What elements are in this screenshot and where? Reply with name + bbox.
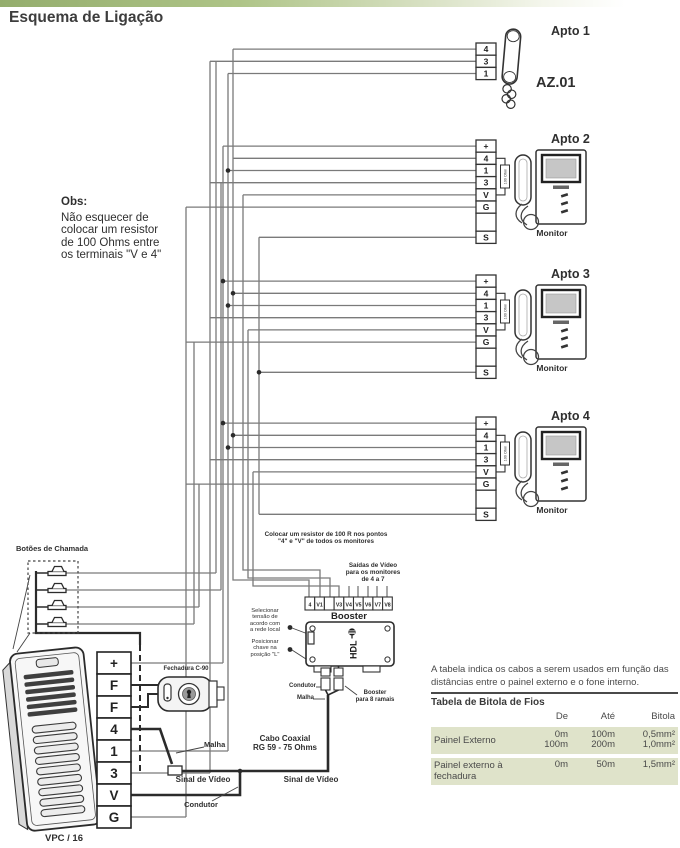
wire-gauge-table: Tabela de Bitola de Fios De Até Bitola P… bbox=[431, 692, 678, 785]
terminal-label: V6 bbox=[365, 603, 371, 609]
terminal-label: 4 bbox=[484, 430, 489, 440]
terminal-label: G bbox=[483, 202, 490, 212]
terminal-label: 1 bbox=[484, 301, 489, 311]
call-button-icon bbox=[48, 567, 66, 627]
resistor-value: 100 Ohm bbox=[504, 169, 508, 185]
lock-icon bbox=[158, 677, 224, 711]
booster-terminal-strip: 4 V1 V3 V4 V5 V6 V7 V8 bbox=[305, 597, 392, 610]
terminal-label: V bbox=[483, 467, 489, 477]
row-label: Painel externo à fechadura bbox=[431, 758, 527, 785]
monitor-icon bbox=[515, 285, 586, 365]
terminal-label: + bbox=[484, 141, 489, 151]
call-buttons-label: Botões de Chamada bbox=[16, 544, 88, 553]
terminal-label: V5 bbox=[355, 603, 361, 609]
terminal-label: V8 bbox=[384, 603, 390, 609]
switch-position-note: Posicionar chave na posição "L" bbox=[242, 639, 288, 658]
resistor-symbols: 100 Ohm 100 Ohm 100 Ohm bbox=[496, 158, 510, 472]
terminal-label: + bbox=[484, 418, 489, 428]
terminal-label: V7 bbox=[375, 603, 381, 609]
terminal-label: 3 bbox=[484, 56, 489, 66]
terminal-label: V3 bbox=[336, 603, 342, 609]
terminal-label: G bbox=[483, 337, 490, 347]
terminal-label: + bbox=[484, 276, 489, 286]
row-label: Painel Externo bbox=[431, 727, 527, 754]
monitor-terminal-strips: + 4 1 3 V G S + 4 1 3 V G S bbox=[476, 140, 496, 520]
apto4-label: Apto 4 bbox=[551, 409, 590, 423]
terminal-label: 3 bbox=[484, 178, 489, 188]
lock-label: Fechadura C-90 bbox=[158, 666, 214, 672]
conductor-label: Condutor bbox=[176, 800, 226, 809]
resistor-value: 100 Ohm bbox=[504, 304, 508, 320]
terminal-label: S bbox=[483, 367, 489, 377]
booster-label: Booster bbox=[305, 611, 393, 622]
table-intro: A tabela indica os cabos a serem usados … bbox=[431, 663, 678, 689]
monitor-caption: Monitor bbox=[512, 505, 592, 515]
terminal-label: S bbox=[483, 232, 489, 242]
table-row: Painel Externo 0m 100m 100m 200m 0,5mm² … bbox=[431, 727, 678, 754]
column-header: Bitola bbox=[618, 711, 678, 727]
handset-icon bbox=[499, 29, 521, 109]
terminal-label: 4 bbox=[484, 288, 489, 298]
resistor-note: Colocar um resistor de 100 R nos pontos … bbox=[245, 531, 407, 546]
panel-model-label: VPC / 16 bbox=[28, 833, 100, 844]
terminal-label: F bbox=[110, 678, 118, 693]
terminal-label: V4 bbox=[346, 603, 352, 609]
booster-box: HDL bbox=[306, 622, 394, 690]
resistor-value: 100 Ohm bbox=[504, 446, 508, 462]
terminal-label: F bbox=[110, 700, 118, 715]
table-row: Painel externo à fechadura 0m 50m 1,5mm² bbox=[431, 758, 678, 785]
booster-conductor-label: Condutor bbox=[288, 683, 316, 689]
terminal-label: 4 bbox=[308, 603, 311, 609]
terminal-label: V bbox=[483, 325, 489, 335]
video-signal-label: Sinal de Vídeo bbox=[162, 775, 244, 784]
table-header-row: De Até Bitola bbox=[431, 711, 678, 727]
terminal-label: 4 bbox=[484, 153, 489, 163]
junction-dots bbox=[221, 168, 293, 773]
video-outputs-note: Saídas de Vídeo para os monitores de 4 a… bbox=[332, 562, 414, 583]
booster-branches-label: Booster para 8 ramais bbox=[352, 690, 398, 704]
shield-label: Malha bbox=[204, 740, 225, 749]
terminal-label: V bbox=[483, 190, 489, 200]
monitor-caption: Monitor bbox=[512, 228, 592, 238]
monitor-icon bbox=[515, 150, 586, 230]
terminal-label: G bbox=[483, 479, 490, 489]
monitor-icon bbox=[515, 427, 586, 507]
terminal-label: 4 bbox=[484, 44, 489, 54]
door-panel bbox=[1, 647, 101, 833]
video-signal-label: Sinal de Vídeo bbox=[270, 775, 352, 784]
model-label: AZ.01 bbox=[536, 75, 576, 91]
terminal-label: 3 bbox=[484, 455, 489, 465]
terminal-label: 1 bbox=[484, 166, 489, 176]
svg-text:HDL: HDL bbox=[349, 640, 359, 659]
terminal-label: 1 bbox=[110, 744, 118, 759]
panel-terminal-strip: + F F 4 1 3 V G bbox=[97, 652, 131, 828]
terminal-label: S bbox=[483, 509, 489, 519]
terminal-label: V bbox=[109, 788, 118, 803]
terminal-label: 4 bbox=[110, 722, 118, 737]
column-header: De bbox=[527, 711, 571, 727]
terminal-label: + bbox=[110, 656, 118, 671]
select-voltage-note: Selecionar tensão de acordo com a rede l… bbox=[242, 608, 288, 633]
apto1-terminal-strip: 4 3 1 bbox=[476, 43, 496, 80]
monitor-caption: Monitor bbox=[512, 363, 592, 373]
table-title: Tabela de Bitola de Fios bbox=[431, 692, 678, 711]
booster-shield-label: Malha bbox=[292, 695, 314, 701]
terminal-label: 1 bbox=[484, 69, 489, 79]
terminal-label: 3 bbox=[484, 313, 489, 323]
column-header: Até bbox=[571, 711, 618, 727]
coax-connector bbox=[168, 766, 182, 775]
wiring-diagram-page: { "title": "Esquema de Ligação", "obs": … bbox=[0, 0, 680, 848]
apto2-label: Apto 2 bbox=[551, 132, 590, 146]
panel-buttons bbox=[32, 722, 85, 817]
apto1-label: Apto 1 bbox=[551, 24, 590, 38]
terminal-label: G bbox=[109, 810, 120, 825]
terminal-label: 3 bbox=[110, 766, 118, 781]
apto3-label: Apto 3 bbox=[551, 267, 590, 281]
coax-cable-label: Cabo Coaxial RG 59 - 75 Ohms bbox=[243, 734, 327, 752]
voltage-switch bbox=[308, 632, 314, 644]
terminal-label: V1 bbox=[316, 603, 322, 609]
terminal-label: 1 bbox=[484, 443, 489, 453]
